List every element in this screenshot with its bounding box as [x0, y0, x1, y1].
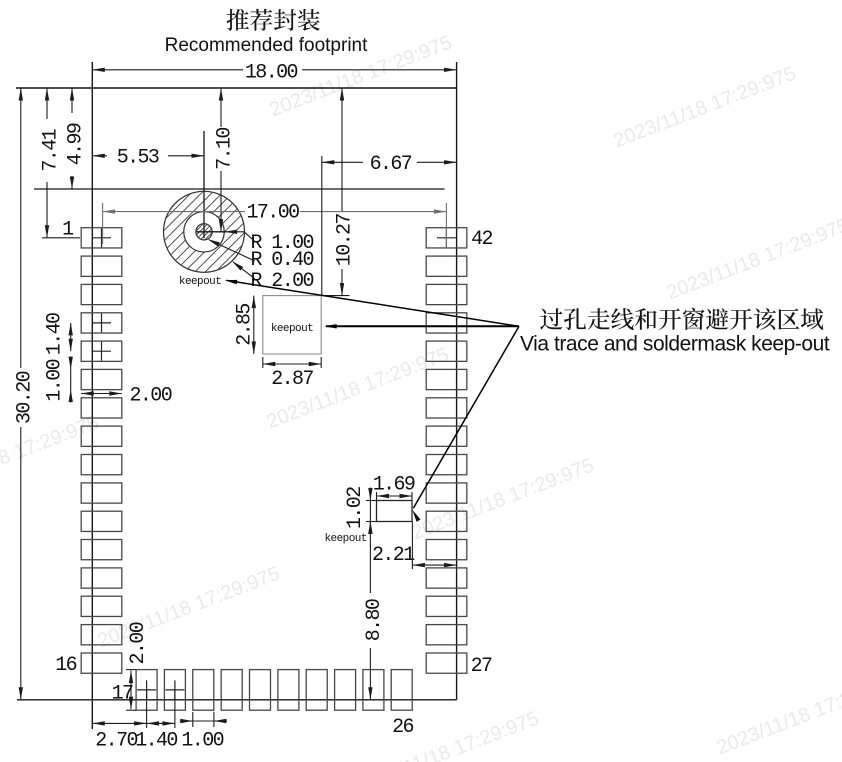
svg-text:16: 16 — [55, 654, 76, 677]
svg-text:2.21: 2.21 — [372, 544, 415, 567]
svg-text:1.00: 1.00 — [43, 359, 66, 401]
svg-text:2.00: 2.00 — [127, 622, 150, 664]
svg-text:2.00: 2.00 — [130, 384, 172, 407]
svg-text:17: 17 — [112, 683, 133, 706]
svg-text:1.00: 1.00 — [181, 730, 223, 753]
svg-text:17.00: 17.00 — [246, 202, 299, 225]
svg-text:Recommended footprint: Recommended footprint — [165, 35, 368, 56]
svg-text:6.67: 6.67 — [370, 153, 412, 176]
svg-text:2.70: 2.70 — [95, 730, 137, 753]
svg-text:2.87: 2.87 — [271, 368, 313, 391]
svg-text:7.10: 7.10 — [213, 128, 236, 170]
svg-text:42: 42 — [471, 228, 492, 251]
svg-text:27: 27 — [471, 655, 492, 678]
svg-text:keepout: keepout — [271, 323, 313, 335]
svg-text:5.53: 5.53 — [117, 147, 159, 170]
svg-text:4.99: 4.99 — [65, 123, 88, 165]
svg-text:Via trace and soldermask keep-: Via trace and soldermask keep-out — [520, 333, 830, 356]
svg-text:7.41: 7.41 — [40, 128, 63, 171]
svg-text:1.40: 1.40 — [43, 313, 66, 355]
svg-text:18.00: 18.00 — [245, 61, 298, 84]
svg-text:2.85: 2.85 — [234, 304, 257, 346]
svg-text:keepout: keepout — [325, 533, 367, 545]
svg-text:26: 26 — [392, 716, 413, 739]
svg-text:1.02: 1.02 — [344, 487, 367, 529]
svg-text:30.20: 30.20 — [13, 371, 36, 424]
svg-text:1: 1 — [62, 218, 74, 241]
svg-text:1.69: 1.69 — [373, 474, 415, 497]
svg-text:1.40: 1.40 — [135, 730, 177, 753]
svg-text:R 0.40: R 0.40 — [251, 249, 314, 272]
svg-text:8.80: 8.80 — [363, 599, 386, 641]
svg-text:keepout: keepout — [179, 276, 221, 288]
svg-text:10.27: 10.27 — [334, 214, 357, 267]
